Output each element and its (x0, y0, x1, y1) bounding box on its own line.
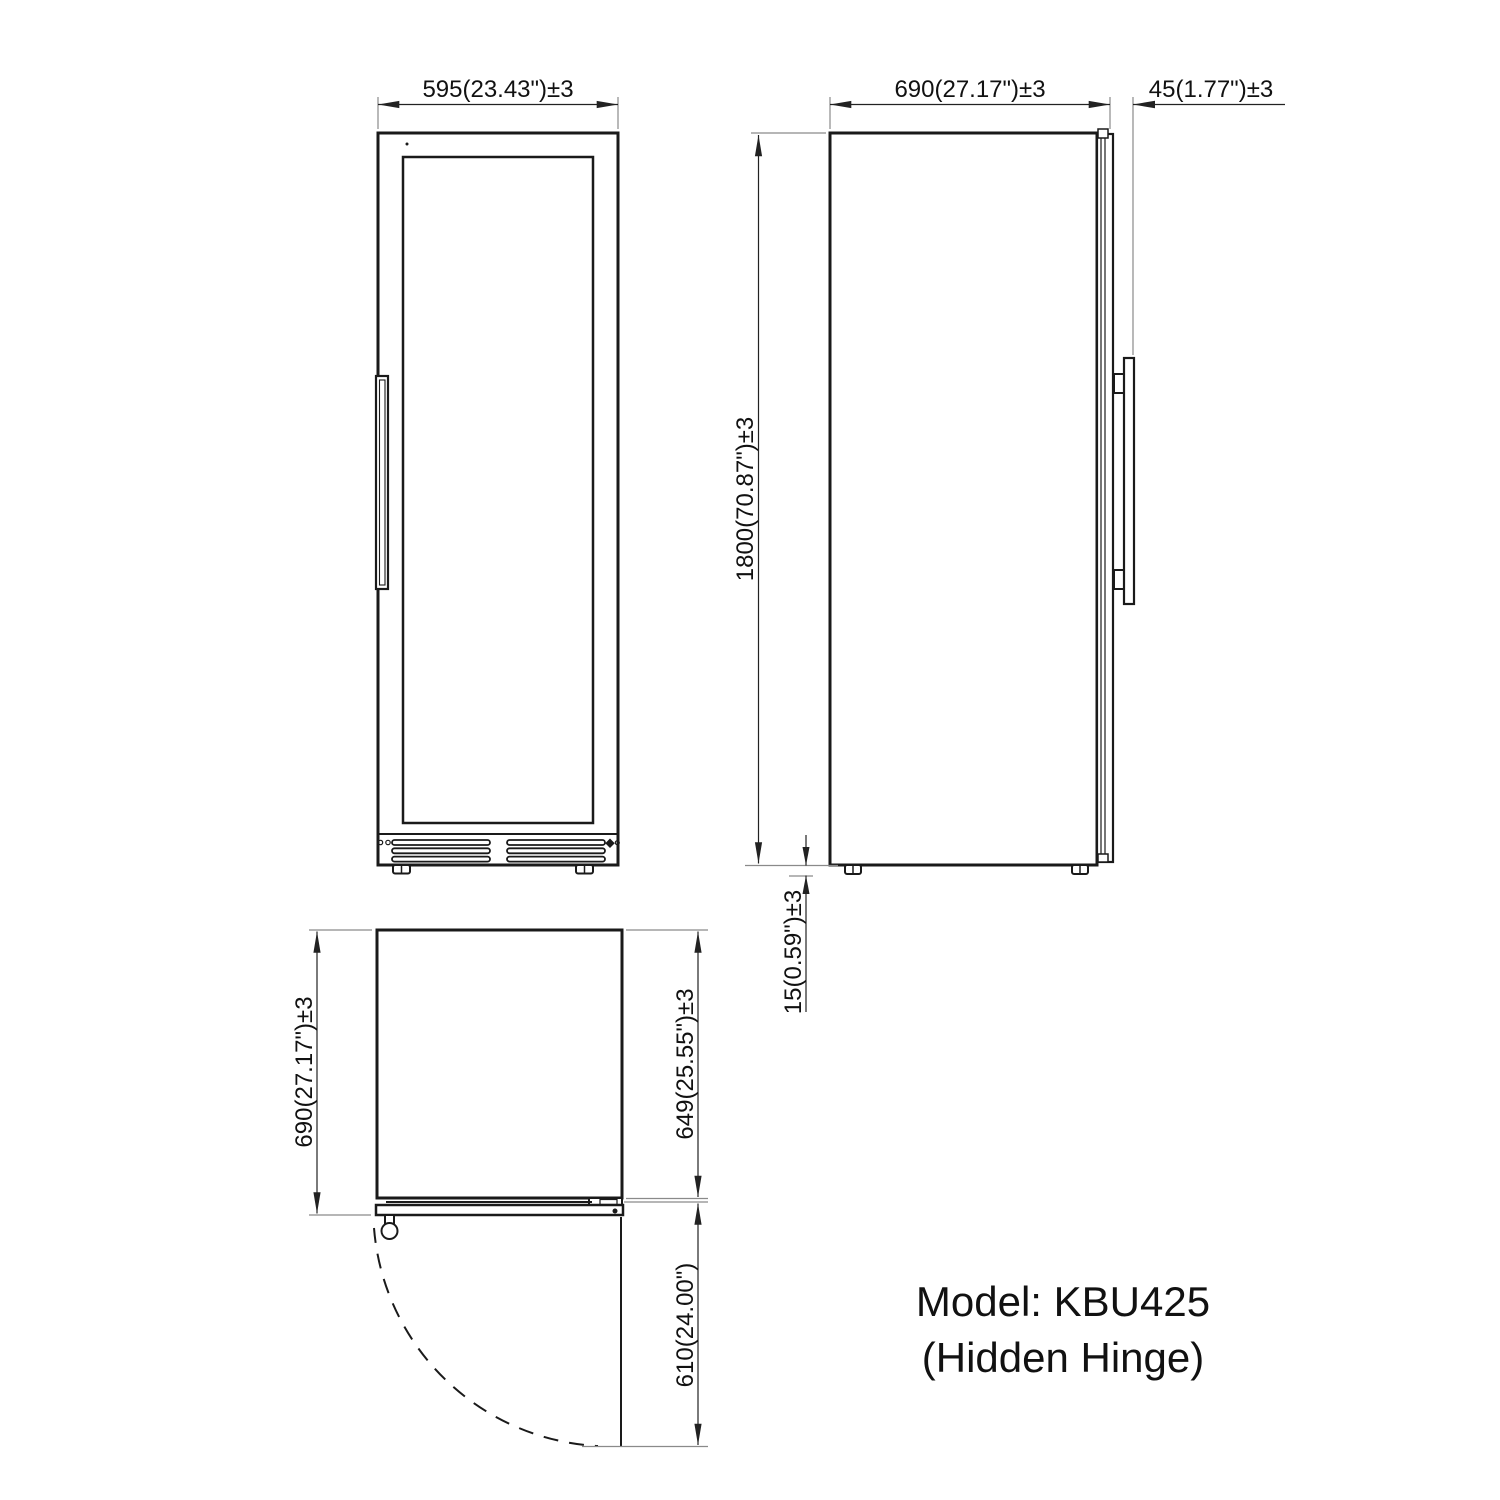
top-cabinet-outline (377, 930, 622, 1198)
side-height-dim-label: 1800(70.87")±3 (732, 417, 759, 581)
model-label-line1: Model: KBU425 (916, 1278, 1210, 1325)
dim-side-height: 1800(70.87")±3 (732, 133, 838, 866)
side-cabinet-outline (830, 133, 1097, 865)
side-handle-dim-label: 45(1.77")±3 (1149, 76, 1273, 103)
side-door-top-hinge-cover (1098, 129, 1108, 138)
front-door-glass (403, 157, 593, 823)
dim-side-depth: 690(27.17")±3 (830, 76, 1110, 129)
front-door-dot (406, 143, 409, 146)
dim-side-handle-clearance: 45(1.77")±3 (1133, 76, 1285, 355)
front-view: 595(23.43")±3 (376, 76, 619, 874)
technical-drawing-page: 595(23.43")±3 690(27.17")±3 (0, 0, 1500, 1500)
side-depth-dim-label: 690(27.17")±3 (894, 76, 1045, 103)
top-view: 690(27.17")±3 649(25.55")±3 610(24.00") (291, 930, 708, 1447)
top-depth-total-dim-label: 690(27.17")±3 (291, 996, 318, 1147)
model-label-line2: (Hidden Hinge) (922, 1334, 1204, 1381)
top-door (376, 1205, 623, 1215)
top-hinge-pivot (613, 1209, 618, 1214)
side-view: 690(27.17")±3 45(1.77")±3 1800(70.87")±3… (732, 76, 1285, 1014)
dim-side-foot-height: 15(0.59")±3 (780, 835, 813, 1014)
top-door-handle (382, 1215, 398, 1239)
side-door-panel (1097, 129, 1113, 862)
side-door-bottom-hinge-cover (1098, 854, 1108, 862)
side-foot-dim-label: 15(0.59")±3 (780, 890, 807, 1014)
technical-drawing-canvas: 595(23.43")±3 690(27.17")±3 (0, 0, 1500, 1500)
top-depth-body-dim-label: 649(25.55")±3 (672, 988, 699, 1139)
front-width-dim-label: 595(23.43")±3 (422, 76, 573, 103)
dim-top-door-swing: 610(24.00") (582, 1202, 708, 1447)
top-door-swing-dim-label: 610(24.00") (672, 1263, 699, 1388)
dim-front-width: 595(23.43")±3 (378, 76, 618, 129)
dim-top-depth-body: 649(25.55")±3 (626, 930, 708, 1199)
dim-top-depth-total: 690(27.17")±3 (291, 930, 372, 1215)
top-door-swing-arc (374, 1228, 598, 1446)
model-label: Model: KBU425 (Hidden Hinge) (916, 1278, 1210, 1381)
side-door-handle (1114, 358, 1134, 604)
front-door-handle (376, 376, 388, 589)
